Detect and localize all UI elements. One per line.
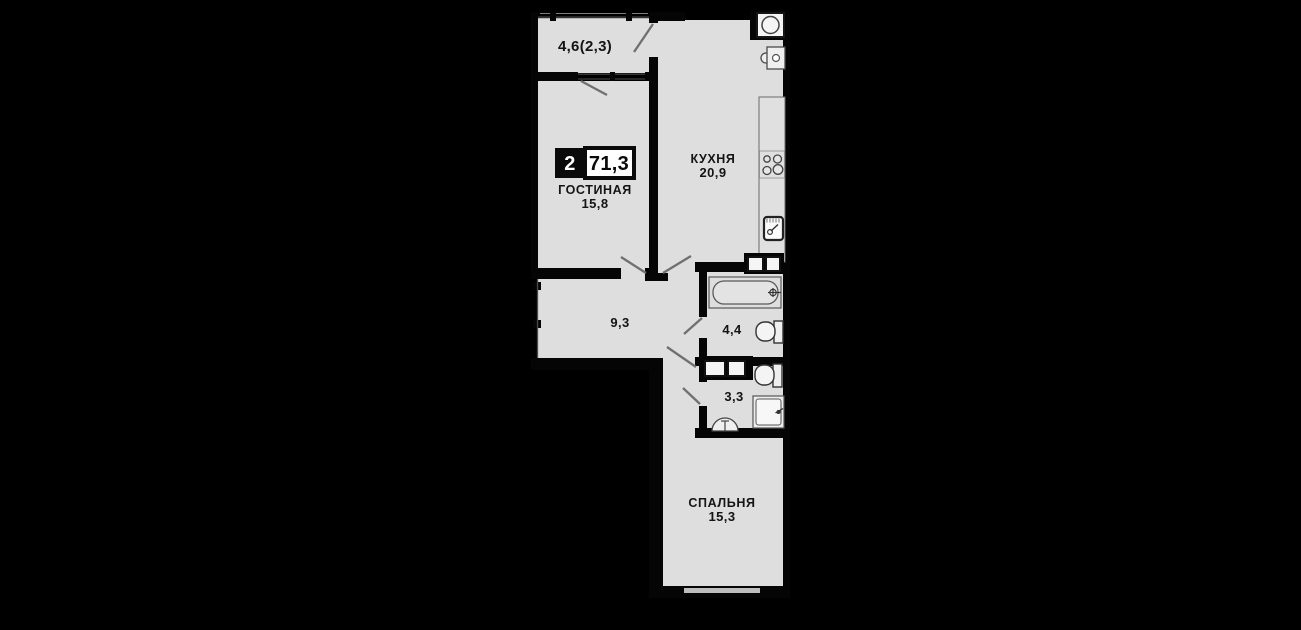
balcony-window-post-left [550, 13, 556, 21]
wall-balcony-living-left [531, 72, 578, 81]
badge-total-area: 71,3 [589, 153, 629, 175]
bath-shaft-box-1 [748, 257, 763, 271]
living-room-area: 15,8 [582, 196, 609, 211]
bathtub-icon [709, 277, 781, 308]
wall-divider-foot [645, 273, 668, 281]
wc-shaft-box-2 [728, 361, 745, 376]
bedroom-window-icon [684, 588, 760, 593]
wall-living-hallway [531, 268, 621, 279]
toilet-icon-bathroom [756, 321, 783, 343]
bedroom-name: СПАЛЬНЯ [688, 496, 755, 510]
bath-shaft-box-2 [766, 257, 780, 271]
wc-shaft-box-1 [705, 361, 725, 376]
wall-bathroom-left-upper [699, 272, 707, 317]
shower-tray-icon [753, 396, 784, 428]
wall-balcony-left [531, 12, 538, 73]
wall-living-left [531, 81, 538, 268]
total-area-badge: 2 71,3 [555, 148, 634, 178]
wc-area: 3,3 [724, 389, 743, 404]
floor-plan: 4,6(2,3) 2 71,3 ГОСТИНАЯ 15,8 КУХНЯ 20,9… [0, 0, 1301, 630]
bedroom-area: 15,3 [709, 509, 736, 524]
wall-hallway-bottom [531, 358, 663, 370]
wc-doorway [699, 382, 707, 406]
kitchen-sink-icon [764, 217, 783, 240]
balcony-area-label: 4,6(2,3) [558, 38, 612, 55]
kitchen-name: КУХНЯ [690, 152, 735, 166]
living-room-name: ГОСТИНАЯ [558, 183, 632, 197]
kitchen-area: 20,9 [700, 165, 727, 180]
bathroom-area: 4,4 [722, 322, 742, 337]
badge-rooms-count: 2 [564, 153, 575, 175]
boiler-dial [773, 55, 780, 62]
wall-bedroom-left [649, 358, 663, 595]
balcony-window-post-right [626, 13, 632, 21]
toilet-icon-wc [755, 364, 782, 387]
balcony-block-mid-post [610, 72, 615, 81]
wall-wc-bottom [695, 428, 783, 438]
hallway-area: 9,3 [610, 315, 629, 330]
wall-living-kitchen [649, 57, 658, 277]
wall-top-segment [653, 12, 685, 21]
